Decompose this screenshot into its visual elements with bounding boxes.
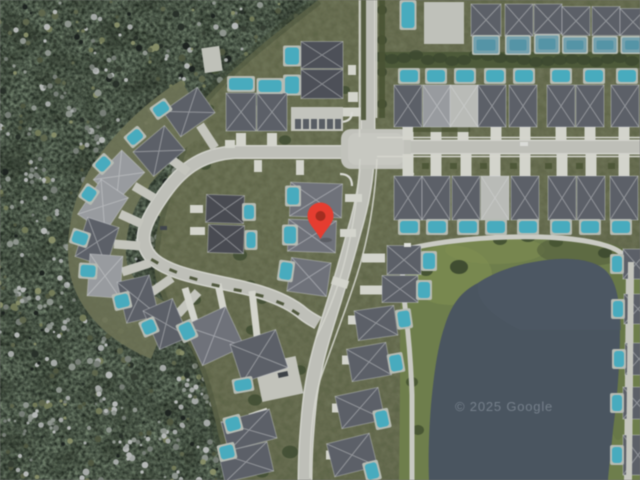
svg-text:© 2025 Google: © 2025 Google	[455, 399, 553, 414]
